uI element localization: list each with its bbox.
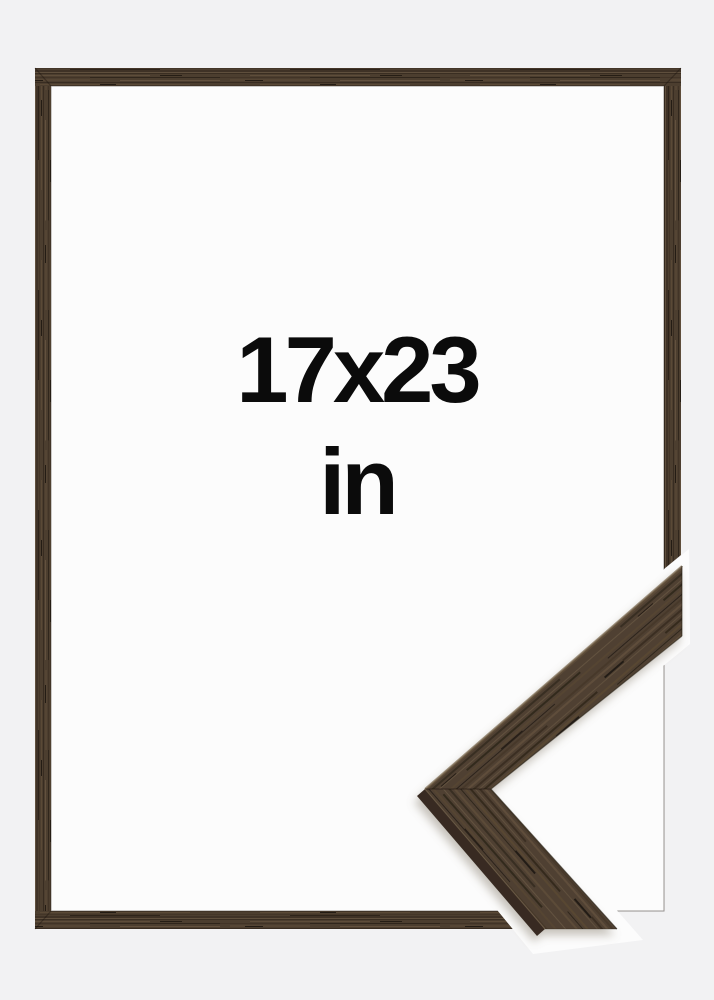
product-image-canvas: 17x23 in xyxy=(0,0,714,1000)
frame-opening xyxy=(51,86,664,911)
frame-front-photo xyxy=(35,68,681,929)
frame-bottom-bar xyxy=(35,911,513,929)
frame-left-bar xyxy=(35,68,51,929)
frame-right-bar xyxy=(664,68,681,569)
frame-size-preview-image xyxy=(0,0,714,1000)
frame-top-bar xyxy=(35,68,681,86)
